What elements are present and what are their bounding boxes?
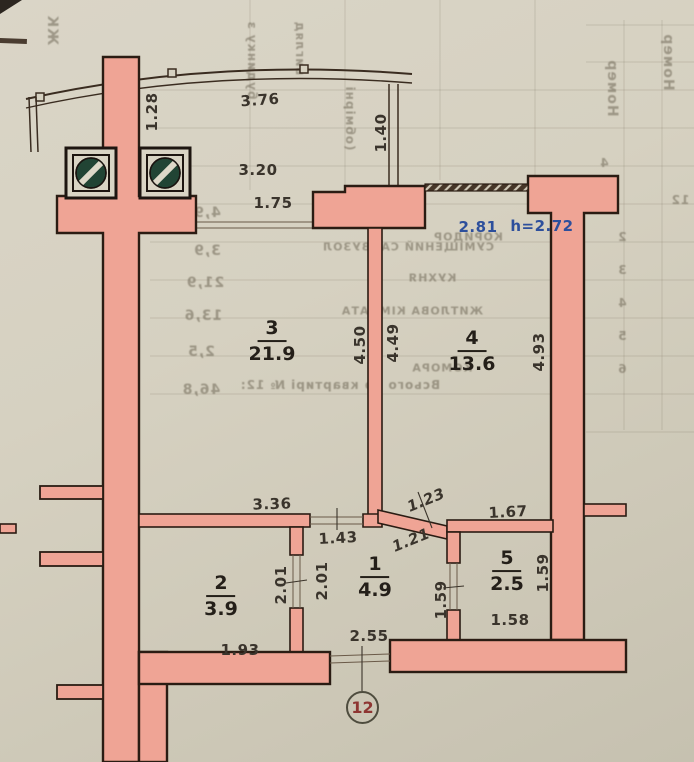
- dim-room4-height-right: 4.93: [530, 332, 548, 371]
- dim-room3-height-left: 4.50: [351, 325, 369, 364]
- vent-shaft-icon: [140, 148, 190, 198]
- room-label-2: 2 3.9: [204, 574, 238, 620]
- wall-room5-top: [447, 520, 553, 532]
- dim-room2-door-right: 2.01: [313, 561, 331, 600]
- room-number: 5: [492, 549, 521, 572]
- dim-room5-right: 1.59: [534, 553, 552, 592]
- dim-hall-door: 1.43: [318, 528, 358, 548]
- vent-shaft-icon: [66, 148, 116, 198]
- wall-stub: [40, 486, 103, 499]
- room-label-4: 4 13.6: [449, 329, 496, 375]
- dim-room5-bottom: 1.58: [490, 611, 529, 629]
- room-label-3: 3 21.9: [249, 319, 296, 365]
- edge-wall-fragment: [0, 38, 27, 44]
- room-number: 4: [457, 329, 486, 352]
- balcony-door-opening: [196, 222, 313, 228]
- room-area: 3.9: [204, 600, 238, 620]
- dim-hall-bottom: 2.55: [349, 627, 388, 645]
- dim-room4-height-left: 4.49: [384, 323, 402, 362]
- room-number: 1: [360, 555, 389, 578]
- dim-room2-door-left: 2.01: [272, 565, 290, 604]
- apartment-number-marker: 12: [346, 691, 379, 724]
- dim-balcony-top: 3.76: [240, 90, 280, 111]
- room-area: 2.5: [490, 575, 524, 595]
- room-label-5: 5 2.5: [490, 549, 524, 595]
- dim-balcony-door: 1.75: [253, 194, 292, 212]
- wall-stub: [40, 552, 103, 566]
- note-width: 2.81: [458, 218, 497, 236]
- partition-room3-room4: [368, 228, 382, 515]
- dim-room3-bottom: 3.36: [252, 494, 292, 513]
- dim-balcony-left: 1.28: [143, 92, 161, 131]
- room-number: 3: [257, 319, 286, 342]
- floor-plan-drawing: [0, 0, 694, 762]
- floor-plan-page: ЖК будинку з вигляд (обмірні Номер Номер…: [0, 0, 694, 762]
- apartment-number: 12: [351, 698, 373, 717]
- partition-room1-room5: [447, 532, 460, 563]
- note-height: h=2.72: [510, 217, 573, 235]
- partition-room2-room1: [290, 608, 303, 652]
- wall-top-piece: [313, 186, 425, 228]
- room-number: 2: [206, 574, 235, 597]
- wall-stub: [584, 504, 626, 516]
- room-area: 21.9: [249, 345, 296, 365]
- dim-balcony-right: 1.40: [372, 113, 390, 152]
- dim-room5-top: 1.67: [488, 502, 528, 522]
- room-area: 13.6: [449, 355, 496, 375]
- photo-corner: [0, 0, 22, 14]
- window: [425, 184, 528, 191]
- wall-stub: [0, 524, 16, 533]
- wall-room3-bottom: [139, 514, 310, 527]
- wall-bottom-right: [390, 640, 626, 672]
- room-label-1: 1 4.9: [358, 555, 392, 601]
- wall-stub: [57, 685, 103, 699]
- room-area: 4.9: [358, 581, 392, 601]
- dim-balcony-inner: 3.20: [238, 161, 277, 179]
- dim-room2-bottom: 1.93: [220, 641, 259, 659]
- dim-room5-door: 1.59: [432, 580, 450, 619]
- partition-room2-room1: [290, 527, 303, 555]
